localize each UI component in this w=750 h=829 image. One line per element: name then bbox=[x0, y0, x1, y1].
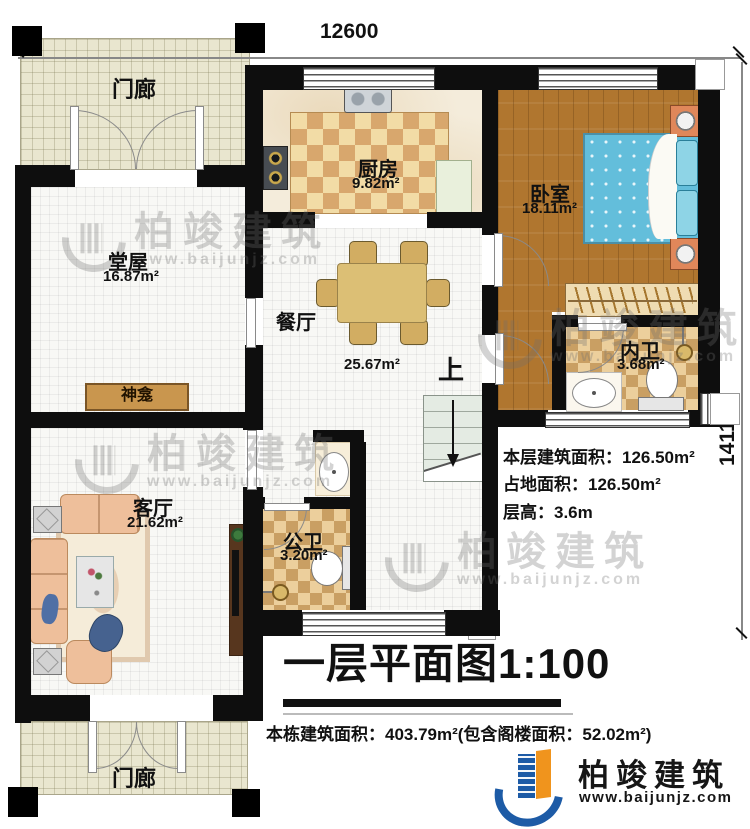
wall-segment bbox=[698, 65, 720, 427]
dining-table-icon bbox=[337, 263, 427, 323]
wall-segment bbox=[552, 327, 566, 410]
brand-logo-icon bbox=[494, 748, 572, 816]
title-underline bbox=[283, 699, 561, 707]
wall-segment bbox=[213, 695, 263, 721]
wall-segment bbox=[350, 442, 366, 497]
page-title: 一层平面图1:100 bbox=[283, 630, 610, 691]
wardrobe-rail bbox=[568, 300, 697, 302]
pillow bbox=[676, 190, 698, 236]
room-label-dining: 餐厅 bbox=[276, 306, 316, 335]
wall-segment bbox=[245, 345, 263, 415]
door-leaf bbox=[246, 298, 256, 348]
sofa-icon bbox=[30, 538, 68, 644]
washbasin-icon bbox=[319, 452, 349, 492]
door-leaf bbox=[88, 721, 97, 773]
wall-segment bbox=[350, 497, 366, 610]
door-leaf bbox=[494, 233, 503, 287]
column bbox=[235, 23, 265, 53]
side-table-inlay bbox=[36, 650, 59, 673]
side-table-icon bbox=[33, 506, 62, 533]
room-area-public-bath: 3.20m² bbox=[280, 547, 328, 564]
side-table-inlay bbox=[36, 508, 59, 531]
stove-icon bbox=[263, 146, 288, 190]
info-land-area: 占地面积：126.50m² bbox=[503, 470, 661, 495]
wall-segment bbox=[552, 315, 578, 327]
door-leaf bbox=[578, 323, 627, 331]
door-leaf bbox=[495, 333, 504, 385]
column bbox=[232, 789, 260, 817]
door-leaf bbox=[264, 503, 310, 511]
washbasin-icon bbox=[572, 378, 616, 408]
tv-icon bbox=[232, 550, 239, 616]
toilet-tank bbox=[638, 397, 684, 411]
stairs-up-label: 上 bbox=[438, 350, 464, 387]
wall-segment bbox=[245, 212, 315, 228]
wall-segment bbox=[243, 487, 263, 695]
wall-segment bbox=[15, 695, 90, 721]
info-floor-area: 本层建筑面积：126.50m² bbox=[503, 443, 695, 468]
window bbox=[303, 67, 435, 90]
shrine-cabinet: 神龛 bbox=[85, 383, 189, 411]
room-tangwu-floor bbox=[31, 187, 245, 412]
stairs-arrow bbox=[452, 400, 454, 456]
room-area-tangwu: 16.87m² bbox=[103, 268, 159, 285]
wall-segment bbox=[243, 412, 263, 430]
wall-segment bbox=[482, 383, 498, 610]
info-floor-height: 层高：3.6m bbox=[503, 498, 593, 523]
nightstand-icon bbox=[670, 238, 701, 270]
dimension-line-top bbox=[18, 57, 740, 59]
wall-segment bbox=[498, 410, 548, 427]
wardrobe-icon bbox=[565, 283, 700, 317]
wall-segment bbox=[25, 412, 255, 428]
wall-segment bbox=[313, 430, 364, 442]
door-leaf bbox=[195, 106, 204, 170]
column bbox=[8, 787, 38, 817]
title-underline-thin bbox=[283, 713, 573, 715]
fridge-icon bbox=[436, 160, 472, 214]
wall-segment bbox=[15, 165, 31, 723]
dimension-line-right bbox=[741, 62, 743, 640]
stairs-arrow-head bbox=[447, 454, 459, 467]
pillow bbox=[676, 140, 698, 186]
shrine-label: 神龛 bbox=[87, 385, 187, 407]
stairs-icon bbox=[423, 395, 484, 482]
window-notch bbox=[710, 393, 740, 425]
room-area-bedroom: 18.11m² bbox=[522, 200, 577, 217]
room-area-living: 21.62m² bbox=[127, 514, 183, 531]
logo-building-orange bbox=[536, 749, 551, 799]
chair-icon bbox=[426, 279, 450, 307]
wall-segment bbox=[621, 315, 698, 327]
column bbox=[12, 26, 42, 56]
coffee-table-icon bbox=[76, 556, 114, 608]
wall-segment bbox=[15, 165, 75, 187]
dimension-top-label: 12600 bbox=[320, 20, 378, 44]
wall-segment bbox=[482, 285, 498, 335]
total-area-note: 本栋建筑面积：403.79m²(包含阁楼面积：52.02m²) bbox=[266, 720, 651, 745]
door-leaf bbox=[70, 106, 79, 170]
shower-head-icon bbox=[272, 584, 289, 601]
room-label-porch-bottom: 门廊 bbox=[112, 761, 156, 793]
side-table-icon bbox=[33, 648, 62, 675]
wall-segment bbox=[304, 497, 354, 509]
floor-plan: 12600 14110 bbox=[0, 0, 750, 829]
room-area-dining: 25.67m² bbox=[344, 356, 400, 373]
window bbox=[545, 412, 690, 428]
door-leaf bbox=[247, 430, 257, 490]
room-area-kitchen: 9.82m² bbox=[352, 175, 400, 192]
logo-building-blue bbox=[518, 754, 535, 798]
nightstand-icon bbox=[670, 105, 701, 137]
wall-segment bbox=[482, 65, 498, 235]
brand-url: www.baijunjz.com bbox=[579, 789, 732, 806]
window-notch bbox=[695, 59, 725, 90]
room-area-inner-bath: 3.68m² bbox=[617, 356, 665, 373]
window bbox=[538, 67, 658, 90]
door-leaf bbox=[177, 721, 186, 773]
room-label-porch-top: 门廊 bbox=[112, 72, 156, 104]
shower-head-icon bbox=[676, 344, 693, 361]
wall-segment bbox=[245, 65, 263, 298]
